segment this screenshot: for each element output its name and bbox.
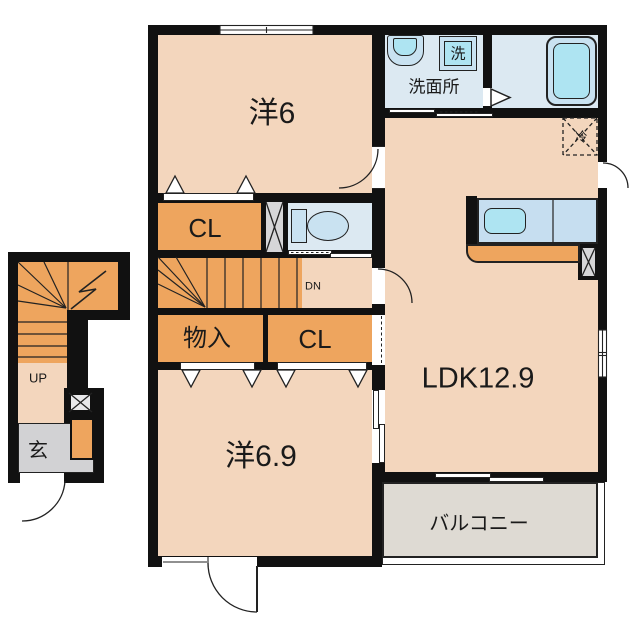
kitchen-counter-cap [466,196,477,246]
storage-track [180,362,255,370]
washroom-sliding-b [436,113,493,118]
closet-top-label: CL [188,215,221,241]
washing-machine-label: 洗 [450,47,465,62]
door-arc-genkan [22,481,65,521]
genkan-door-opening [20,473,64,483]
bathtub-inner [553,43,590,99]
kitchen-cabinet [466,244,580,263]
room-label-yo6: 洋6 [249,99,296,129]
balcony-sliding-b [489,477,544,482]
wall-toilet-ldk [372,188,385,269]
sliding-door-yo69-b [379,424,385,463]
wall-yo69-ldk-lower [372,463,385,472]
door-landing-opening [372,268,385,304]
toilet-tank [291,209,307,243]
entry-wall-run-right [67,310,88,393]
storage-label: 物入 [183,327,231,351]
door-arc-yo69-bottom [208,563,257,612]
kitchen-shaft [582,248,595,276]
closet-bottom-track [277,362,367,370]
wall-stairs-storage [158,308,372,315]
entry-wall-top [8,252,130,262]
stairs-down-label: DN [305,282,321,293]
window-right [598,330,607,377]
wall-storage-closet [263,315,268,362]
washroom-sliding-a [389,109,435,114]
toilet-sliding-door-a [288,250,332,255]
room-label-yo69: 洋6.9 [225,442,297,472]
wall-landing-ldk [372,303,385,315]
entry-shaft [69,393,92,412]
window-yo6-top [220,25,313,35]
shoe-cabinet [70,418,94,460]
balcony-label: バルコニー [429,514,529,534]
door-yo69-opening [162,557,257,567]
closet-top-track [163,193,254,201]
entrance-label: 玄 [28,441,48,461]
washbasin-bowl [393,38,417,56]
door-yo6-opening [372,146,385,189]
stairs-up-label: UP [29,372,47,385]
toilet-bowl [307,211,349,241]
toilet-shaft [266,202,283,252]
entry-wall-left [8,252,18,483]
main-stairs-floor [158,258,302,308]
wall-yo69-balcony [372,472,382,557]
washroom-label: 洗面所 [409,79,460,96]
wall-yo6-washroom [372,25,385,147]
balcony-sliding-a [435,473,491,478]
wall-right [598,25,607,482]
entry-stairs-upper-floor [18,262,118,310]
bath-door-gap [483,88,492,106]
entry-stairs-run-floor [18,310,67,363]
kitchen-sink-icon [484,208,526,234]
ldk-label: LDK12.9 [422,365,535,394]
closet-bottom-label: CL [298,326,331,352]
ldk-floor [385,118,598,472]
wall-left [148,25,158,567]
door-right-opening [598,162,607,188]
fridge-label: 冷 [574,131,587,144]
toilet-sliding-door-b [330,253,372,258]
floor-plan: 洋6 CL 物入 CL 洋6.9 LDK12.9 バルコニー 洗面所 洗 冷 玄… [0,0,640,640]
closet-ldk-strip [372,315,385,365]
wall-yo69-ldk-upper [372,365,385,390]
